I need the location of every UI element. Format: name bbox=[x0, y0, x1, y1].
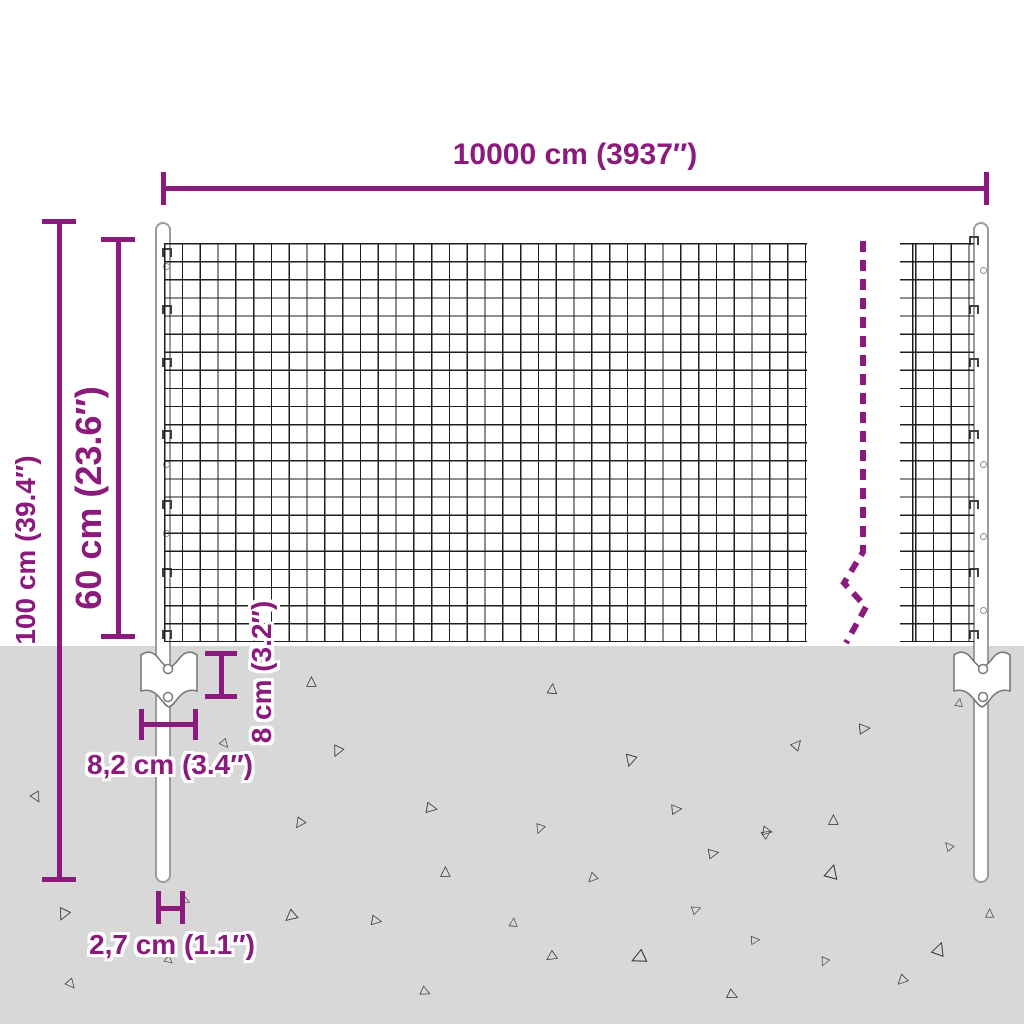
dim-anchor-height-label: 8 cm (3.2″) bbox=[246, 587, 278, 757]
break-dashed-line bbox=[844, 241, 866, 643]
dim-width-tick-left bbox=[161, 172, 166, 205]
left-plate-hole-top bbox=[164, 665, 173, 674]
dim-height-mesh-label: 60 cm (23.6″) bbox=[68, 348, 110, 648]
dim-post-width-cap-left bbox=[156, 891, 161, 924]
dim-anchor-width-cap-right bbox=[193, 709, 198, 740]
dim-anchor-width-cap-left bbox=[139, 709, 144, 740]
fence-mesh-panel bbox=[164, 243, 807, 642]
dim-height-mesh-line bbox=[116, 238, 121, 639]
dim-height-total-label: 100 cm (39.4″) bbox=[10, 420, 42, 680]
left-plate-hole-bottom bbox=[164, 693, 173, 702]
fence-mesh-panel-right bbox=[900, 243, 974, 642]
dim-height-total-cap-top bbox=[42, 219, 76, 224]
dim-anchor-width-label: 8,2 cm (3.4″) bbox=[40, 749, 300, 781]
dim-height-total-line bbox=[57, 221, 62, 881]
fence-dimension-diagram: △△△△△△△△△△△△△△△△△△△△△△△△△△△△△△△△△△△△△△ 1… bbox=[0, 0, 1024, 1024]
dim-height-total-cap-bottom bbox=[42, 877, 76, 882]
dim-post-width-cap-right bbox=[180, 891, 185, 924]
dim-height-mesh-cap-top bbox=[101, 237, 135, 242]
dim-width-line bbox=[163, 186, 987, 191]
dim-anchor-height-cap-top bbox=[205, 651, 237, 656]
dim-width-label: 10000 cm (3937″) bbox=[375, 138, 775, 172]
dim-post-width-label: 2,7 cm (1.1″) bbox=[22, 929, 322, 961]
dim-anchor-width-line bbox=[141, 722, 197, 727]
right-plate-hole-bottom bbox=[979, 693, 988, 702]
dim-width-tick-right bbox=[984, 172, 989, 205]
dim-anchor-height-line bbox=[219, 653, 224, 699]
right-plate-hole-top bbox=[979, 665, 988, 674]
dim-anchor-height-cap-bottom bbox=[205, 694, 237, 699]
